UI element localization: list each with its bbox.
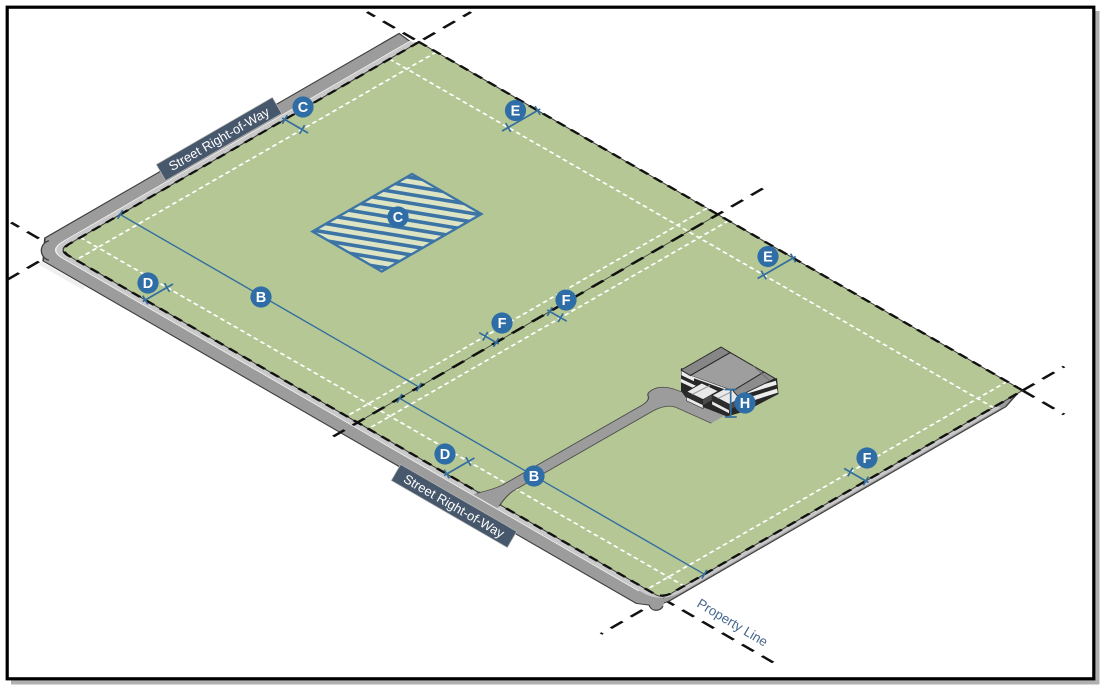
svg-text:F: F xyxy=(562,293,571,309)
svg-text:F: F xyxy=(863,451,872,467)
svg-text:D: D xyxy=(440,447,450,463)
svg-text:B: B xyxy=(256,290,266,306)
svg-text:D: D xyxy=(143,276,153,292)
svg-text:H: H xyxy=(740,396,750,412)
svg-text:B: B xyxy=(529,469,539,485)
svg-text:C: C xyxy=(298,100,309,116)
svg-text:E: E xyxy=(511,104,521,120)
svg-text:E: E xyxy=(763,250,773,266)
svg-text:C: C xyxy=(393,210,404,226)
svg-text:F: F xyxy=(498,316,507,332)
